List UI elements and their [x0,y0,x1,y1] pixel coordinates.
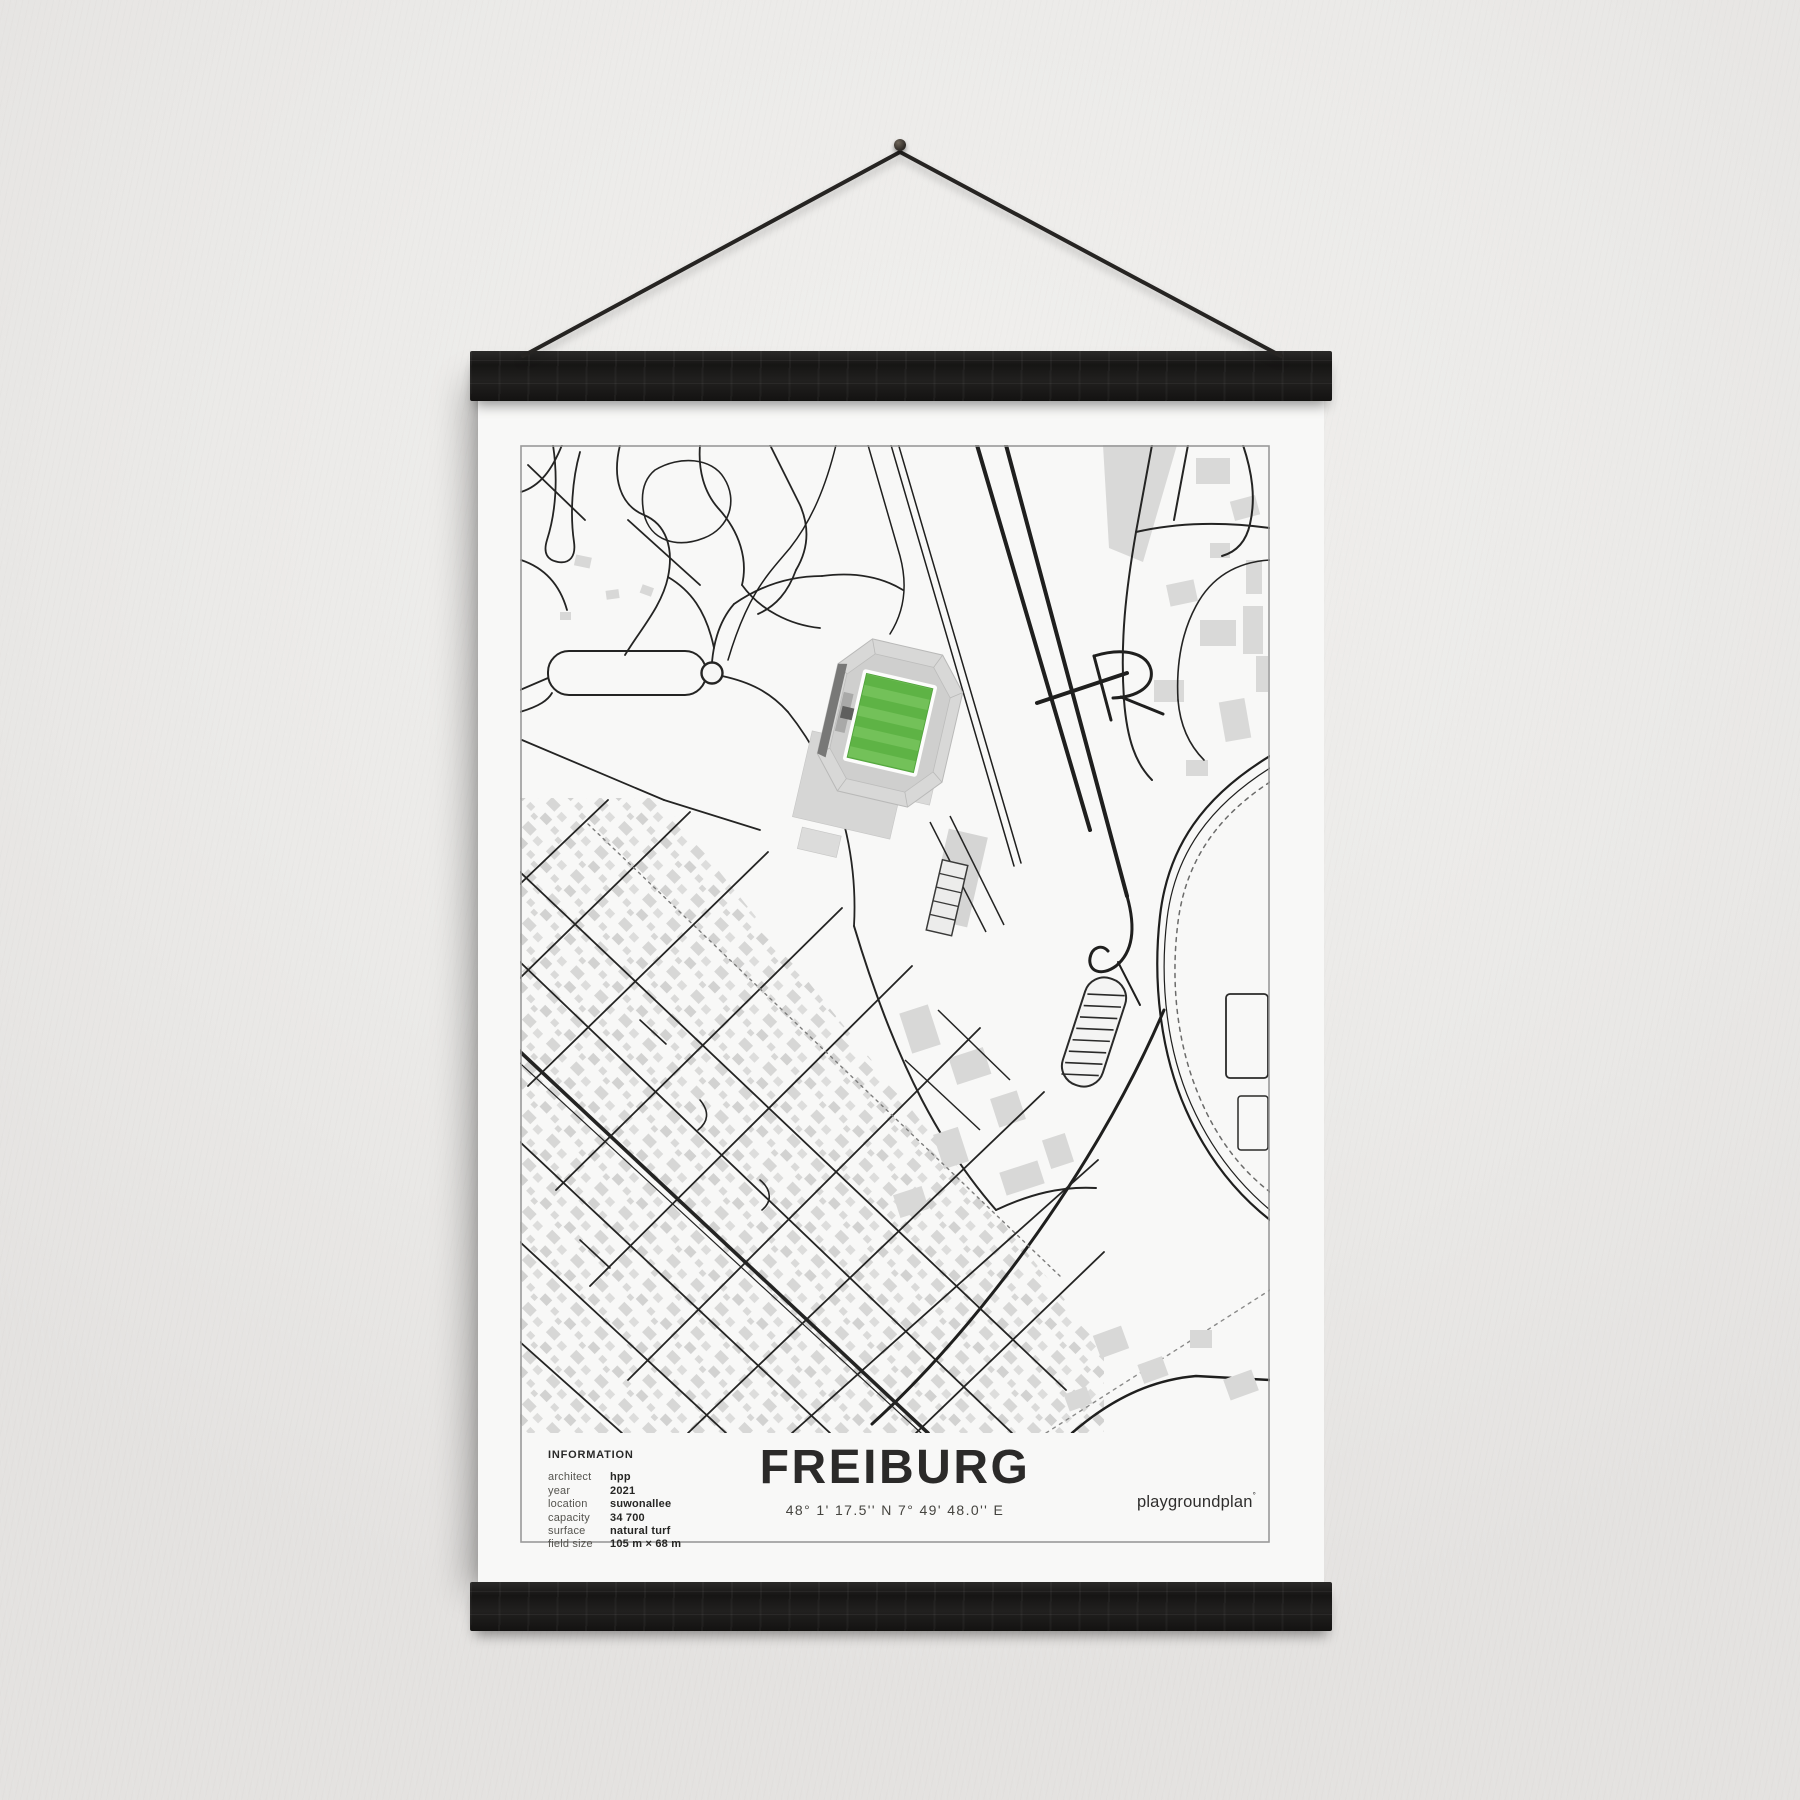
sports-field [1226,994,1268,1150]
roundabout [520,604,788,712]
stadium-map [520,445,1270,1543]
brand-degree-mark: ° [1253,1491,1256,1500]
hanger-bar-bottom [470,1582,1332,1631]
railway-dashed-line [1175,782,1270,1192]
parking-garage [1057,972,1132,1091]
poster-title: FREIBURG [520,1444,1270,1492]
poster: INFORMATION architecthpp year2021 locati… [478,353,1324,1584]
map-content [520,445,1270,1433]
info-row-field-size: field size105 m × 68 m [548,1538,681,1551]
brand-logo: playgroundplan° [1137,1491,1256,1512]
info-row-surface: surfacenatural turf [548,1525,681,1538]
nail [894,139,906,151]
park-buildings [560,554,654,620]
hanger-string [0,0,1800,520]
wall-scene: INFORMATION architecthpp year2021 locati… [0,0,1800,1800]
